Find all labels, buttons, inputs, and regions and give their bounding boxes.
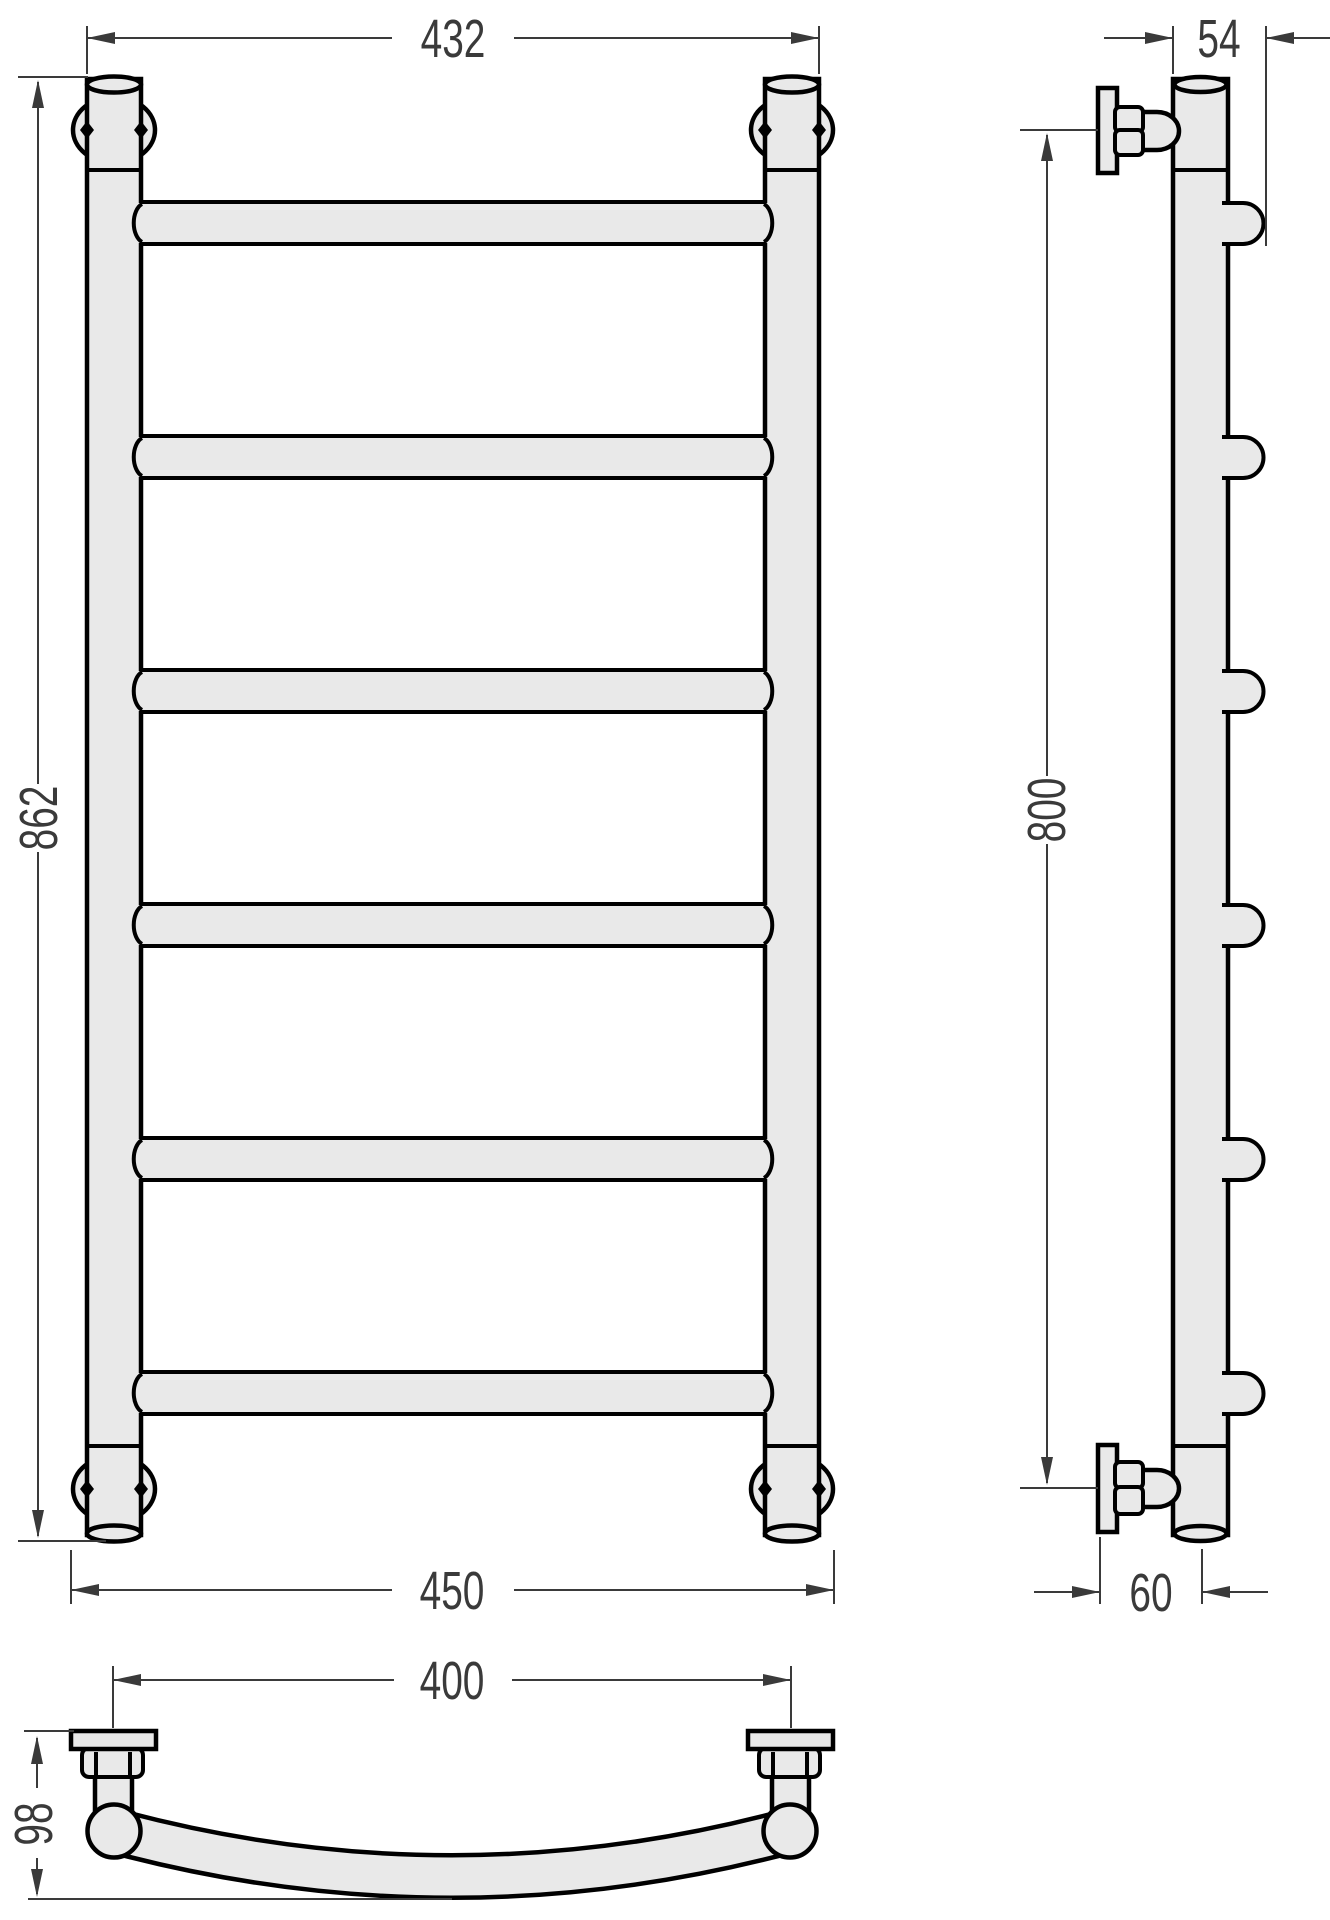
dimensions: 432 862 450 54 800: [3, 8, 1330, 1899]
left-post: [87, 79, 141, 1535]
seam-line: [87, 170, 819, 1446]
plan-post-right: [764, 1805, 817, 1858]
arrow-right-icon: [1145, 32, 1173, 44]
arrow-left-icon: [87, 32, 115, 44]
dim-value-400: 400: [420, 1650, 485, 1711]
arrow-up-icon: [1041, 133, 1053, 161]
dimension-plan-mount-span: 400: [113, 1650, 791, 1728]
post-cap-top-right: [765, 77, 819, 93]
dimension-front-bottom-width: 450: [71, 1550, 834, 1620]
front-view: [73, 77, 833, 1542]
bottom-nut: [1115, 1462, 1143, 1488]
rung-3: [134, 670, 773, 712]
dim-value-862: 862: [8, 786, 69, 851]
dimension-front-top-width: 432: [87, 8, 819, 74]
post-cap-bottom-left: [87, 1526, 141, 1542]
post-cap-bottom-right: [765, 1526, 819, 1542]
arrow-down-icon: [32, 1510, 44, 1538]
plan-flange-right: [748, 1731, 833, 1749]
arrow-right-icon: [806, 1584, 834, 1596]
rung-5: [134, 1138, 773, 1180]
arrow-right-icon: [791, 32, 819, 44]
rung-6: [134, 1372, 773, 1414]
side-view: [1098, 77, 1264, 1541]
bottom-nut: [1115, 1487, 1143, 1514]
side-cap-top: [1175, 77, 1227, 92]
plan-nut-right: [759, 1748, 820, 1777]
ring-tips: [80, 121, 826, 1498]
arrow-down-icon: [1041, 1457, 1053, 1485]
dimension-side-bottom-depth: 60: [1034, 1537, 1268, 1622]
right-post: [765, 79, 819, 1535]
bottom-connector: [1141, 1470, 1179, 1507]
dim-value-60: 60: [1129, 1562, 1172, 1623]
top-nut: [1115, 130, 1143, 155]
rung-2: [134, 436, 773, 478]
arrow-up-icon: [31, 1736, 43, 1764]
arrow-right-icon: [1072, 1586, 1100, 1598]
side-post-tube: [1173, 79, 1228, 1535]
dim-value-98: 98: [3, 1802, 64, 1845]
arrow-up-icon: [32, 80, 44, 108]
dim-value-800: 800: [1016, 778, 1077, 843]
side-cap-bottom: [1175, 1526, 1227, 1541]
arrow-left-icon: [1266, 32, 1294, 44]
dimension-side-mount-height: 800: [1016, 130, 1098, 1488]
towel-rail-drawing: 432 862 450 54 800: [0, 0, 1330, 1920]
arrow-left-icon: [113, 1674, 141, 1686]
arrow-left-icon: [71, 1584, 99, 1596]
dim-value-450: 450: [420, 1560, 485, 1621]
arrow-right-icon: [763, 1674, 791, 1686]
plan-flange-left: [71, 1731, 156, 1749]
rung-4: [134, 904, 773, 946]
arrow-down-icon: [31, 1869, 43, 1897]
top-connector: [1141, 112, 1179, 150]
plan-post-left: [88, 1805, 141, 1858]
drawing-canvas: 432 862 450 54 800: [0, 0, 1330, 1920]
dim-value-432: 432: [421, 8, 486, 69]
arrow-left-icon: [1202, 1586, 1230, 1598]
post-cap-top-left: [87, 77, 141, 93]
plan-view: [71, 1731, 833, 1877]
plan-nut-left: [82, 1748, 143, 1777]
rung-1: [134, 202, 773, 244]
dim-value-54: 54: [1197, 8, 1240, 69]
